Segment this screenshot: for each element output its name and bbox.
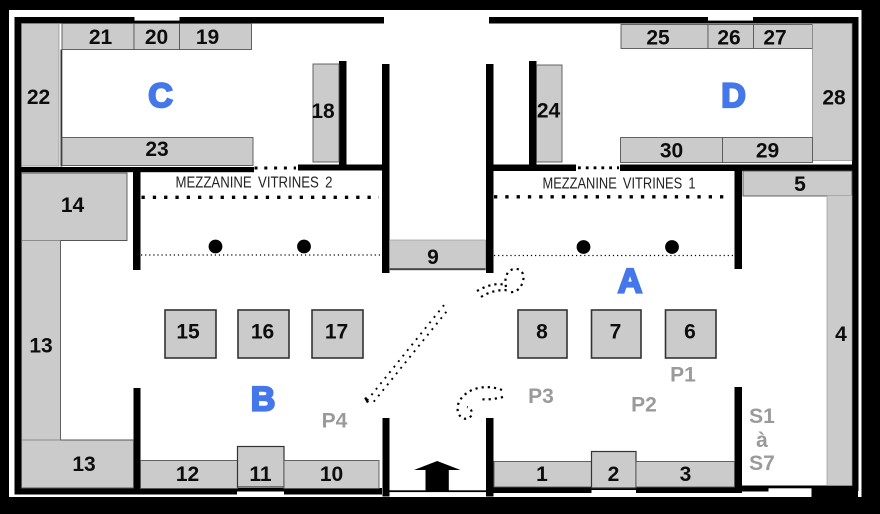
svg-text:21: 21 bbox=[89, 26, 113, 49]
svg-text:A: A bbox=[618, 263, 643, 301]
svg-text:P2: P2 bbox=[631, 394, 657, 417]
svg-text:24: 24 bbox=[537, 100, 561, 123]
svg-text:8: 8 bbox=[536, 321, 548, 344]
svg-text:D: D bbox=[721, 77, 746, 115]
svg-text:13: 13 bbox=[29, 335, 52, 358]
svg-text:22: 22 bbox=[27, 86, 50, 109]
svg-text:6: 6 bbox=[684, 321, 696, 344]
svg-text:16: 16 bbox=[251, 321, 274, 344]
svg-text:27: 27 bbox=[763, 27, 786, 50]
svg-text:9: 9 bbox=[427, 246, 439, 269]
svg-text:1: 1 bbox=[536, 463, 548, 486]
svg-text:25: 25 bbox=[646, 27, 670, 50]
svg-text:à: à bbox=[756, 429, 768, 452]
svg-text:28: 28 bbox=[822, 87, 846, 110]
svg-text:5: 5 bbox=[794, 173, 806, 196]
svg-text:3: 3 bbox=[680, 463, 692, 486]
svg-text:17: 17 bbox=[325, 321, 348, 344]
svg-text:MEZZANINE VITRINES 1: MEZZANINE VITRINES 1 bbox=[543, 175, 696, 192]
svg-text:29: 29 bbox=[756, 140, 779, 163]
svg-text:4: 4 bbox=[835, 323, 847, 346]
svg-text:14: 14 bbox=[61, 194, 85, 217]
svg-text:20: 20 bbox=[145, 26, 168, 49]
svg-text:23: 23 bbox=[145, 138, 168, 161]
svg-text:30: 30 bbox=[660, 140, 683, 163]
svg-text:B: B bbox=[251, 381, 276, 419]
svg-text:19: 19 bbox=[196, 26, 219, 49]
svg-text:11: 11 bbox=[249, 463, 272, 486]
svg-text:P1: P1 bbox=[670, 364, 696, 387]
svg-text:2: 2 bbox=[608, 463, 620, 486]
svg-text:13: 13 bbox=[72, 453, 95, 476]
svg-text:15: 15 bbox=[176, 321, 200, 344]
svg-text:12: 12 bbox=[176, 463, 199, 486]
svg-text:18: 18 bbox=[311, 100, 335, 123]
svg-text:10: 10 bbox=[320, 463, 343, 486]
svg-text:S7: S7 bbox=[749, 452, 775, 475]
svg-text:C: C bbox=[148, 77, 173, 115]
svg-text:S1: S1 bbox=[749, 405, 775, 428]
svg-text:P4: P4 bbox=[322, 410, 348, 433]
svg-text:MEZZANINE VITRINES 2: MEZZANINE VITRINES 2 bbox=[176, 174, 333, 191]
svg-text:P3: P3 bbox=[528, 385, 554, 408]
svg-text:7: 7 bbox=[610, 321, 622, 344]
svg-text:26: 26 bbox=[717, 27, 740, 50]
